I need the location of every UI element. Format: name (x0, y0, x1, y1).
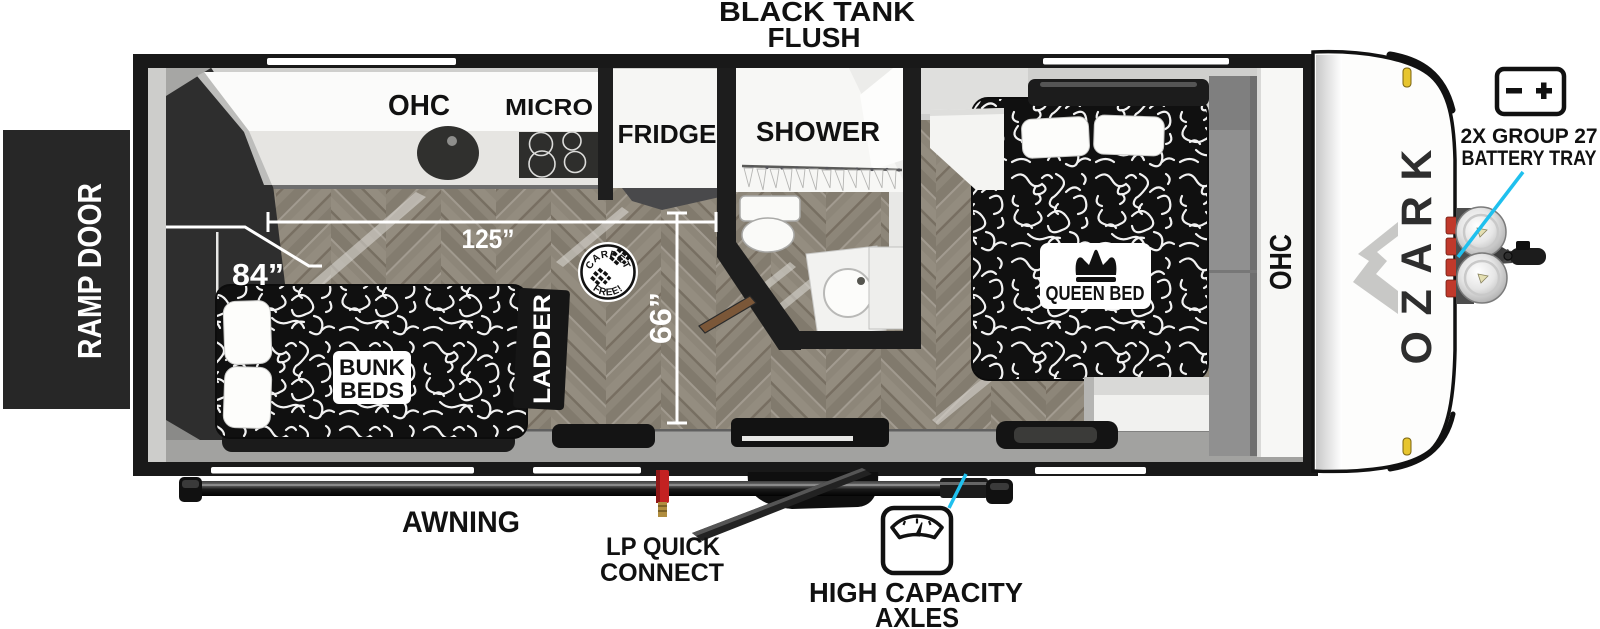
svg-text:LADDER: LADDER (529, 294, 556, 404)
svg-text:LP QUICK: LP QUICK (606, 533, 720, 561)
svg-text:2X GROUP 27: 2X GROUP 27 (1461, 125, 1598, 148)
svg-text:RAMP DOOR: RAMP DOOR (71, 183, 108, 359)
svg-text:OHC: OHC (388, 90, 450, 122)
svg-text:AWNING: AWNING (402, 506, 520, 539)
svg-text:CONNECT: CONNECT (600, 559, 724, 587)
svg-text:MICRO: MICRO (505, 94, 593, 120)
svg-text:BEDS: BEDS (340, 378, 404, 403)
svg-text:BATTERY TRAY: BATTERY TRAY (1462, 147, 1597, 170)
svg-text:FRIDGE: FRIDGE (618, 119, 717, 149)
svg-text:AXLES: AXLES (875, 602, 959, 629)
svg-text:BUNK: BUNK (339, 355, 405, 380)
svg-text:QUEEN BED: QUEEN BED (1046, 283, 1145, 305)
svg-text:FLUSH: FLUSH (768, 22, 861, 53)
svg-text:SHOWER: SHOWER (756, 116, 880, 147)
svg-text:84”: 84” (232, 257, 284, 292)
svg-text:125”: 125” (462, 224, 515, 254)
svg-text:66”: 66” (643, 292, 678, 344)
svg-text:OHC: OHC (1263, 234, 1298, 290)
